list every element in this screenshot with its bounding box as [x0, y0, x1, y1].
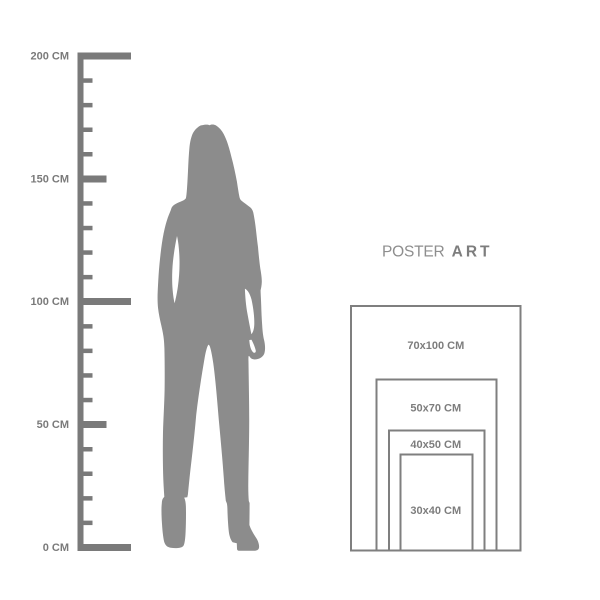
svg-text:30x40 CM: 30x40 CM — [410, 505, 461, 517]
svg-text:POSTER ART: POSTER ART — [382, 244, 493, 261]
svg-text:200 CM: 200 CM — [30, 51, 69, 63]
svg-text:100 CM: 100 CM — [30, 296, 69, 308]
svg-text:40x50 CM: 40x50 CM — [410, 439, 461, 451]
svg-text:50x70 CM: 50x70 CM — [410, 403, 461, 415]
svg-text:150 CM: 150 CM — [30, 174, 69, 186]
svg-text:70x100 CM: 70x100 CM — [407, 340, 464, 352]
svg-text:50 CM: 50 CM — [37, 419, 69, 431]
svg-text:0 CM: 0 CM — [43, 542, 69, 554]
